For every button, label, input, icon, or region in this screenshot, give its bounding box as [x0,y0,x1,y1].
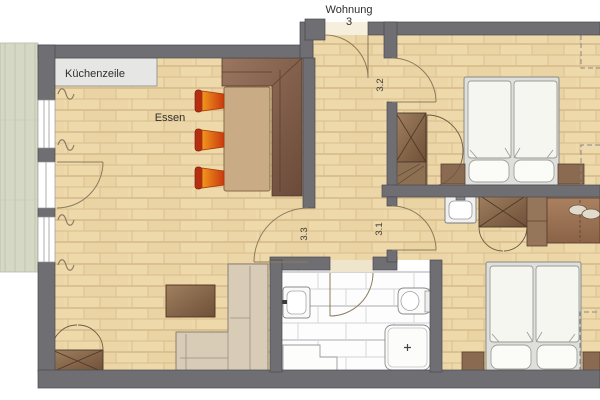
wall-segment [368,22,600,35]
pillow [537,345,577,369]
nightstand [583,352,600,371]
wall-segment [38,45,55,100]
sideboard [441,164,465,184]
wall-pillar [387,197,397,206]
basin-bowl [582,209,600,219]
floor-plan: Wohnung 3 Küchenzeile Essen 3.2 3.3 3.1 [0,0,600,400]
mattress [490,266,533,342]
doorway-floor [387,58,397,102]
floor-plan-svg: Wohnung 3 Küchenzeile Essen 3.2 3.3 3.1 [0,0,600,400]
dining-label: Essen [155,112,186,124]
wall-segment [387,102,397,187]
mattress [536,266,579,342]
dining-table [224,87,270,191]
mattress [514,81,557,158]
nightstand [558,164,584,184]
windows [38,100,55,262]
window [38,100,55,148]
window [38,217,55,262]
wall-pillar [38,148,55,162]
wall-segment [38,262,55,372]
door-number-3-1: 3.1 [374,222,385,235]
door-number-3-2: 3.2 [375,78,386,91]
toilet-bowl [401,292,419,311]
bathroom-doorway-floor [330,260,373,272]
door-number-3-3: 3.3 [299,227,310,240]
washbasin-bowl [449,201,472,219]
dining-chair [195,167,224,189]
apartment-title: Wohnung [326,4,373,16]
wall-pillar [305,19,325,40]
dining-chair [195,129,224,151]
apartment-number: 3 [346,16,352,28]
pillow [514,160,554,182]
dining-chairs [195,90,224,189]
wall-segment [384,22,397,58]
wall-segment [303,58,315,208]
pillow [469,160,509,182]
sink-bowl [287,291,306,314]
nightstand [462,352,484,371]
vanity-desk [547,198,600,243]
pillow [491,345,531,369]
kitchen-label: Küchenzeile [65,68,125,80]
doorway-floor [387,206,397,250]
balcony-door-opening [38,162,55,208]
wall-segment [38,45,313,58]
wall-segment [38,370,600,388]
coffee-table [166,285,215,317]
wall-pillar [387,250,397,262]
dining-chair [195,90,224,112]
mattress [468,81,511,158]
wall-segment [382,185,600,197]
wall-segment [430,260,442,372]
balcony-deck [0,43,38,272]
wall-pillar [38,208,55,217]
wall-segment [270,260,282,372]
